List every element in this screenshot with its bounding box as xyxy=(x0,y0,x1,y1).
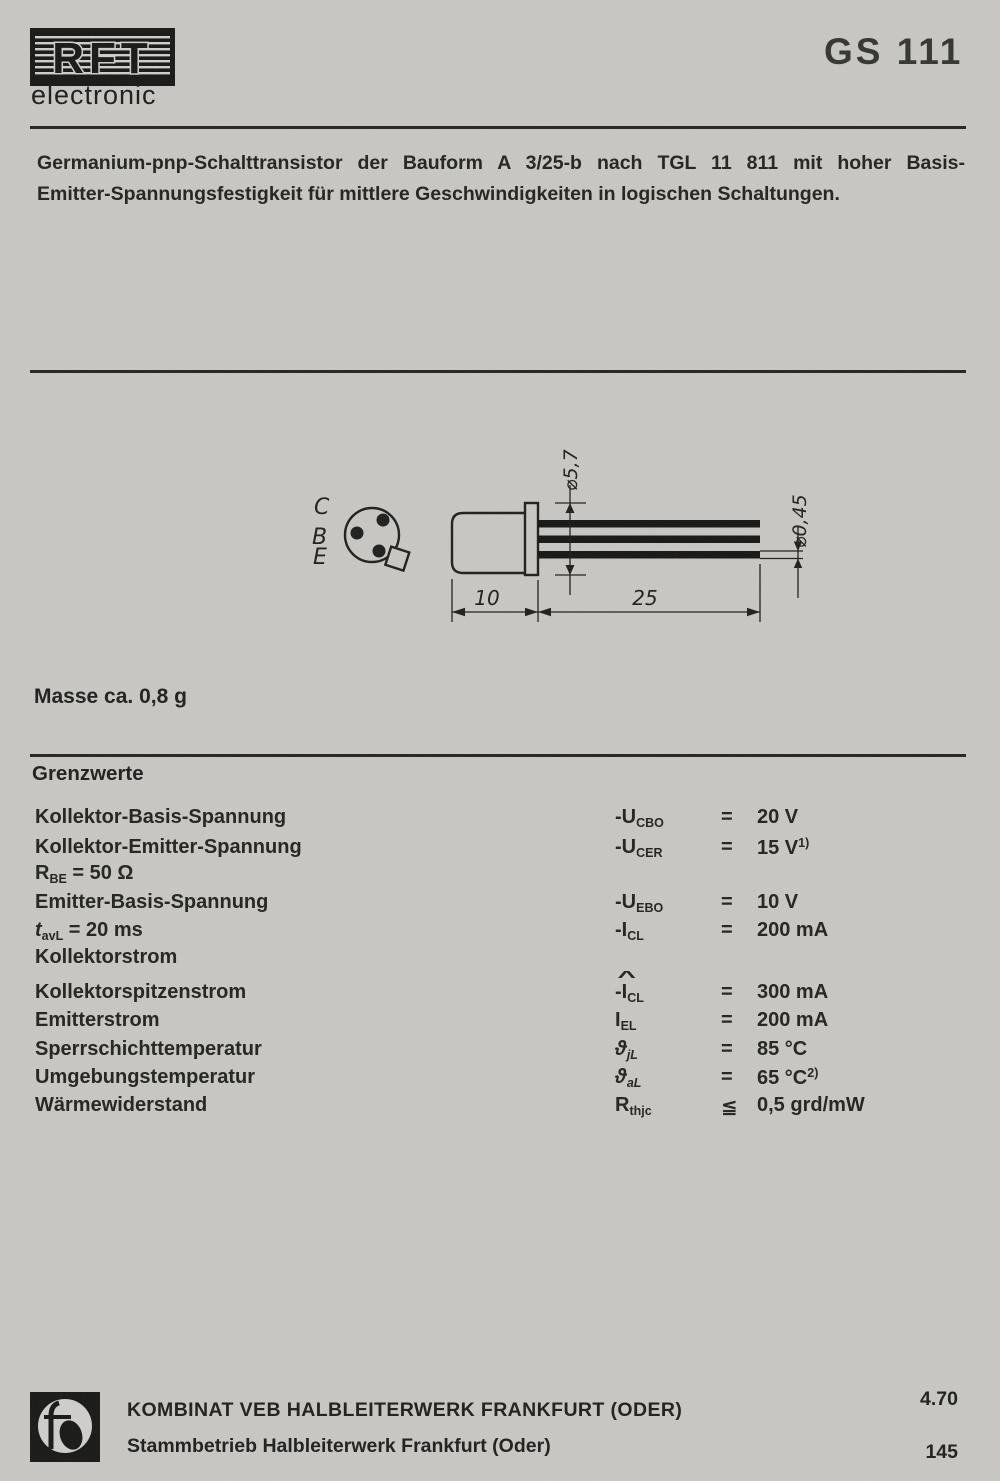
section-rule-top xyxy=(30,370,966,373)
peak-hat: ^ xyxy=(617,969,636,987)
limit-label: Kollektorstrom xyxy=(35,946,177,969)
limit-value: 65 °C2) xyxy=(757,1066,818,1090)
limit-relation: = xyxy=(721,1009,733,1032)
limit-relation: = xyxy=(721,1066,733,1089)
limit-row: tavL = 20 ms -ICL = 200 mA xyxy=(35,919,969,948)
limits-rule xyxy=(30,754,966,757)
transistor-body xyxy=(452,513,525,573)
limit-value: 0,5 grd/mW xyxy=(757,1094,865,1117)
limit-symbol: IEL xyxy=(615,1009,637,1033)
footer-company-line: KOMBINAT VEB HALBLEITERWERK FRANKFURT (O… xyxy=(127,1399,682,1422)
pin-label-e: E xyxy=(313,545,327,570)
limit-label: Umgebungstemperatur xyxy=(35,1066,255,1089)
mass-note: Masse ca. 0,8 g xyxy=(34,685,187,709)
intro-line-1: Germanium-pnp-Schalttransistor der Baufo… xyxy=(37,148,965,179)
intro-line-2: Emitter-Spannungsfestigkeit für mittlere… xyxy=(37,179,965,210)
datasheet-page: RFT electronic GS 111 Germanium-pnp-Scha… xyxy=(0,0,1000,1481)
limit-label: Sperrschichttemperatur xyxy=(35,1038,262,1061)
limit-symbol: ϑjL xyxy=(615,1038,638,1062)
dim-lead-length-label: 25 xyxy=(632,586,657,610)
transistor-flange xyxy=(525,503,538,575)
limit-label: Emitterstrom xyxy=(35,1009,159,1032)
brand-subtitle: electronic xyxy=(31,80,157,111)
limit-value: 200 mA xyxy=(757,1009,828,1032)
dim-lead-diameter-label: ⌀0,45 xyxy=(789,494,811,548)
pinout-index-tab xyxy=(385,547,409,571)
limit-label: RBE = 50 Ω xyxy=(35,862,133,886)
limit-relation: = xyxy=(721,919,733,942)
limit-label: tavL = 20 ms xyxy=(35,919,143,943)
limit-label: Emitter-Basis-Spannung xyxy=(35,891,268,914)
limit-symbol: -ICL xyxy=(615,919,644,943)
limit-row: Kollektor-Basis-Spannung -UCBO = 20 V xyxy=(35,806,969,835)
limit-value: 10 V xyxy=(757,891,798,914)
limit-value: 20 V xyxy=(757,806,798,829)
transistor-leads xyxy=(538,520,760,559)
limit-relation: = xyxy=(721,836,733,859)
dim-cap-diameter-label: ⌀5,7 xyxy=(560,449,582,491)
limit-symbol: -UCBO xyxy=(615,806,664,830)
limit-value: 300 mA xyxy=(757,981,828,1004)
limit-row: Kollektorstrom xyxy=(35,946,969,975)
limit-label: Kollektorspitzenstrom xyxy=(35,981,246,1004)
limit-relation: = xyxy=(721,891,733,914)
limit-row: Kollektorspitzenstrom ^-ICL = 300 mA xyxy=(35,981,969,1010)
limit-symbol: -UEBO xyxy=(615,891,663,915)
limit-label: Wärmewiderstand xyxy=(35,1094,207,1117)
header-rule xyxy=(30,126,966,129)
limit-relation: = xyxy=(721,981,733,1004)
hfo-logo xyxy=(30,1392,100,1462)
footer-page-number: 145 xyxy=(925,1441,958,1464)
paper-grain-overlay xyxy=(0,0,1000,1481)
intro-paragraph: Germanium-pnp-Schalttransistor der Baufo… xyxy=(37,148,965,209)
limit-row: Emitter-Basis-Spannung -UEBO = 10 V xyxy=(35,891,969,920)
limit-label: Kollektor-Basis-Spannung xyxy=(35,806,286,829)
limit-relation: = xyxy=(721,1038,733,1061)
rft-logo-text: RFT xyxy=(52,34,153,83)
footer-plant-line: Stammbetrieb Halbleiterwerk Frankfurt (O… xyxy=(127,1435,551,1458)
limit-symbol: ^-ICL xyxy=(615,981,644,1005)
limit-value: 200 mA xyxy=(757,919,828,942)
pin-label-c: C xyxy=(314,495,330,520)
limit-value: 85 °C xyxy=(757,1038,807,1061)
limit-row: RBE = 50 Ω xyxy=(35,862,969,891)
limit-row: Kollektor-Emitter-Spannung -UCER = 15 V1… xyxy=(35,836,969,865)
limit-symbol: -UCER xyxy=(615,836,663,860)
limit-row: Sperrschichttemperatur ϑjL = 85 °C xyxy=(35,1038,969,1067)
limit-label: Kollektor-Emitter-Spannung xyxy=(35,836,302,859)
limit-relation: = xyxy=(721,806,733,829)
package-drawing: C B E ⌀5,7 xyxy=(300,428,820,660)
limit-row: Wärmewiderstand Rthjc ≦ 0,5 grd/mW xyxy=(35,1094,969,1123)
rft-logo: RFT xyxy=(30,28,175,86)
limit-relation: ≦ xyxy=(721,1094,738,1119)
dim-body-length-label: 10 xyxy=(474,586,499,610)
pin-dots xyxy=(351,514,390,558)
limits-heading: Grenzwerte xyxy=(32,762,144,786)
limit-symbol: Rthjc xyxy=(615,1094,652,1118)
part-number: GS 111 xyxy=(824,31,963,73)
footer-issue-date: 4.70 xyxy=(920,1388,958,1411)
limit-row: Emitterstrom IEL = 200 mA xyxy=(35,1009,969,1038)
limit-row: Umgebungstemperatur ϑaL = 65 °C2) xyxy=(35,1066,969,1095)
limit-symbol: ϑaL xyxy=(615,1066,641,1090)
limit-value: 15 V1) xyxy=(757,836,809,860)
